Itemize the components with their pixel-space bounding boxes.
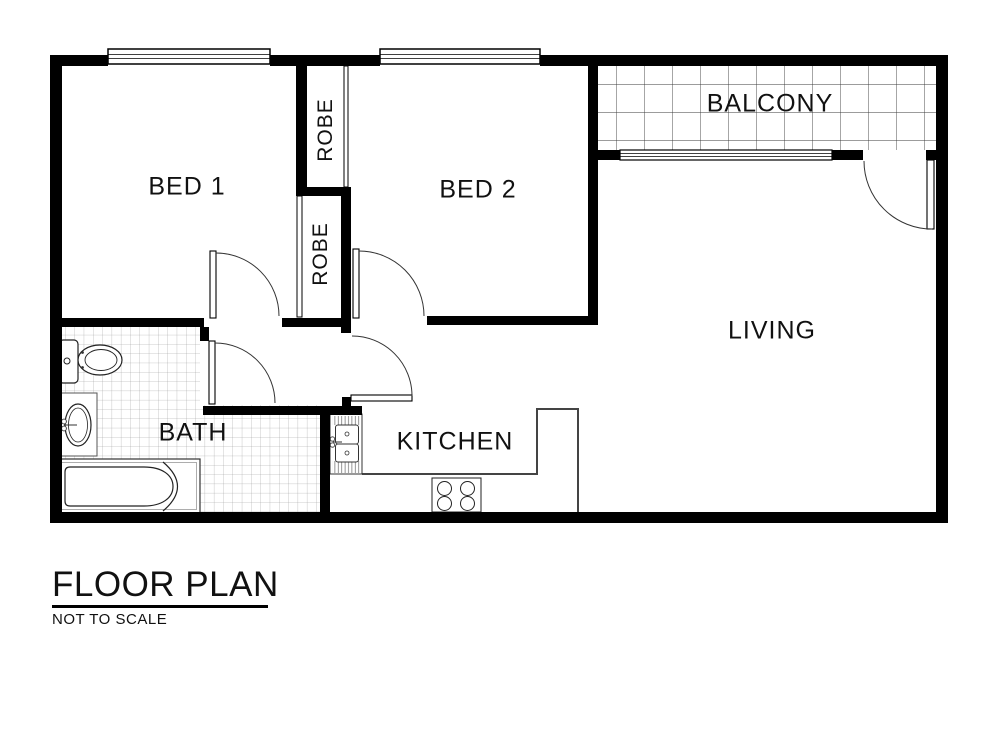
wall-bed2-living-vertical [588,60,598,325]
room-label-living: LIVING [728,317,816,346]
room-label-kitchen: KITCHEN [397,428,514,457]
wall-bath-east [320,415,330,514]
wall-bed1-robe [296,60,307,196]
balcony-door-swing-arc [864,161,932,229]
wall-left [50,55,62,523]
robe-lower-open-front [297,196,302,317]
room-label-bed2: BED 2 [439,176,516,205]
bath-door-swing-arc [215,343,275,403]
wall-bath-door-stub [200,327,209,341]
wall-balcony-left [596,150,623,160]
room-label-bath: BATH [159,419,228,448]
wall-kitchen-door-stub [342,397,351,410]
bed1-window [108,49,270,64]
balcony-door [864,160,934,229]
room-label-robe-lower: ROBE [309,222,333,286]
bath-door [209,341,275,404]
bed2-door [353,249,424,318]
cooktop-icon [432,478,481,512]
floor-plan-drawing [0,0,1000,753]
floor-plan-page: BED 1 BED 2 BALCONY LIVING BATH KITCHEN … [0,0,1000,753]
bed1-door [210,251,279,318]
title-subtitle: NOT TO SCALE [52,611,279,628]
wall-bed2-living [427,316,598,325]
kitchen-sink-icon [330,414,362,474]
wall-right [936,55,948,523]
wall-bed1-hall [282,318,350,327]
vanity-basin-icon [60,393,97,456]
wall-balcony-right [926,150,938,160]
wall-robe-bed2 [341,187,351,333]
wall-bottom [50,512,948,523]
room-label-balcony: BALCONY [707,90,833,119]
room-label-robe-upper: ROBE [314,98,338,162]
bed2-window [380,49,540,64]
kitchen-door-swing-arc [352,336,412,396]
title-block: FLOOR PLAN NOT TO SCALE [52,567,279,628]
balcony-sliding-window [620,150,832,160]
wall-bed1-bath [56,318,204,327]
room-label-bed1: BED 1 [148,173,225,202]
bed1-door-swing-arc [216,253,279,316]
kitchen-door [351,336,412,401]
wall-balcony-mid [831,150,863,160]
wall-top-right [540,55,948,66]
bathtub-icon [58,459,200,513]
robe-upper-open-front [344,66,348,187]
title-underline [52,605,268,608]
bed2-door-swing-arc [359,251,424,316]
wall-bath-kitchen [203,406,362,415]
page-title: FLOOR PLAN [52,567,279,602]
wall-top-mid [270,55,380,66]
